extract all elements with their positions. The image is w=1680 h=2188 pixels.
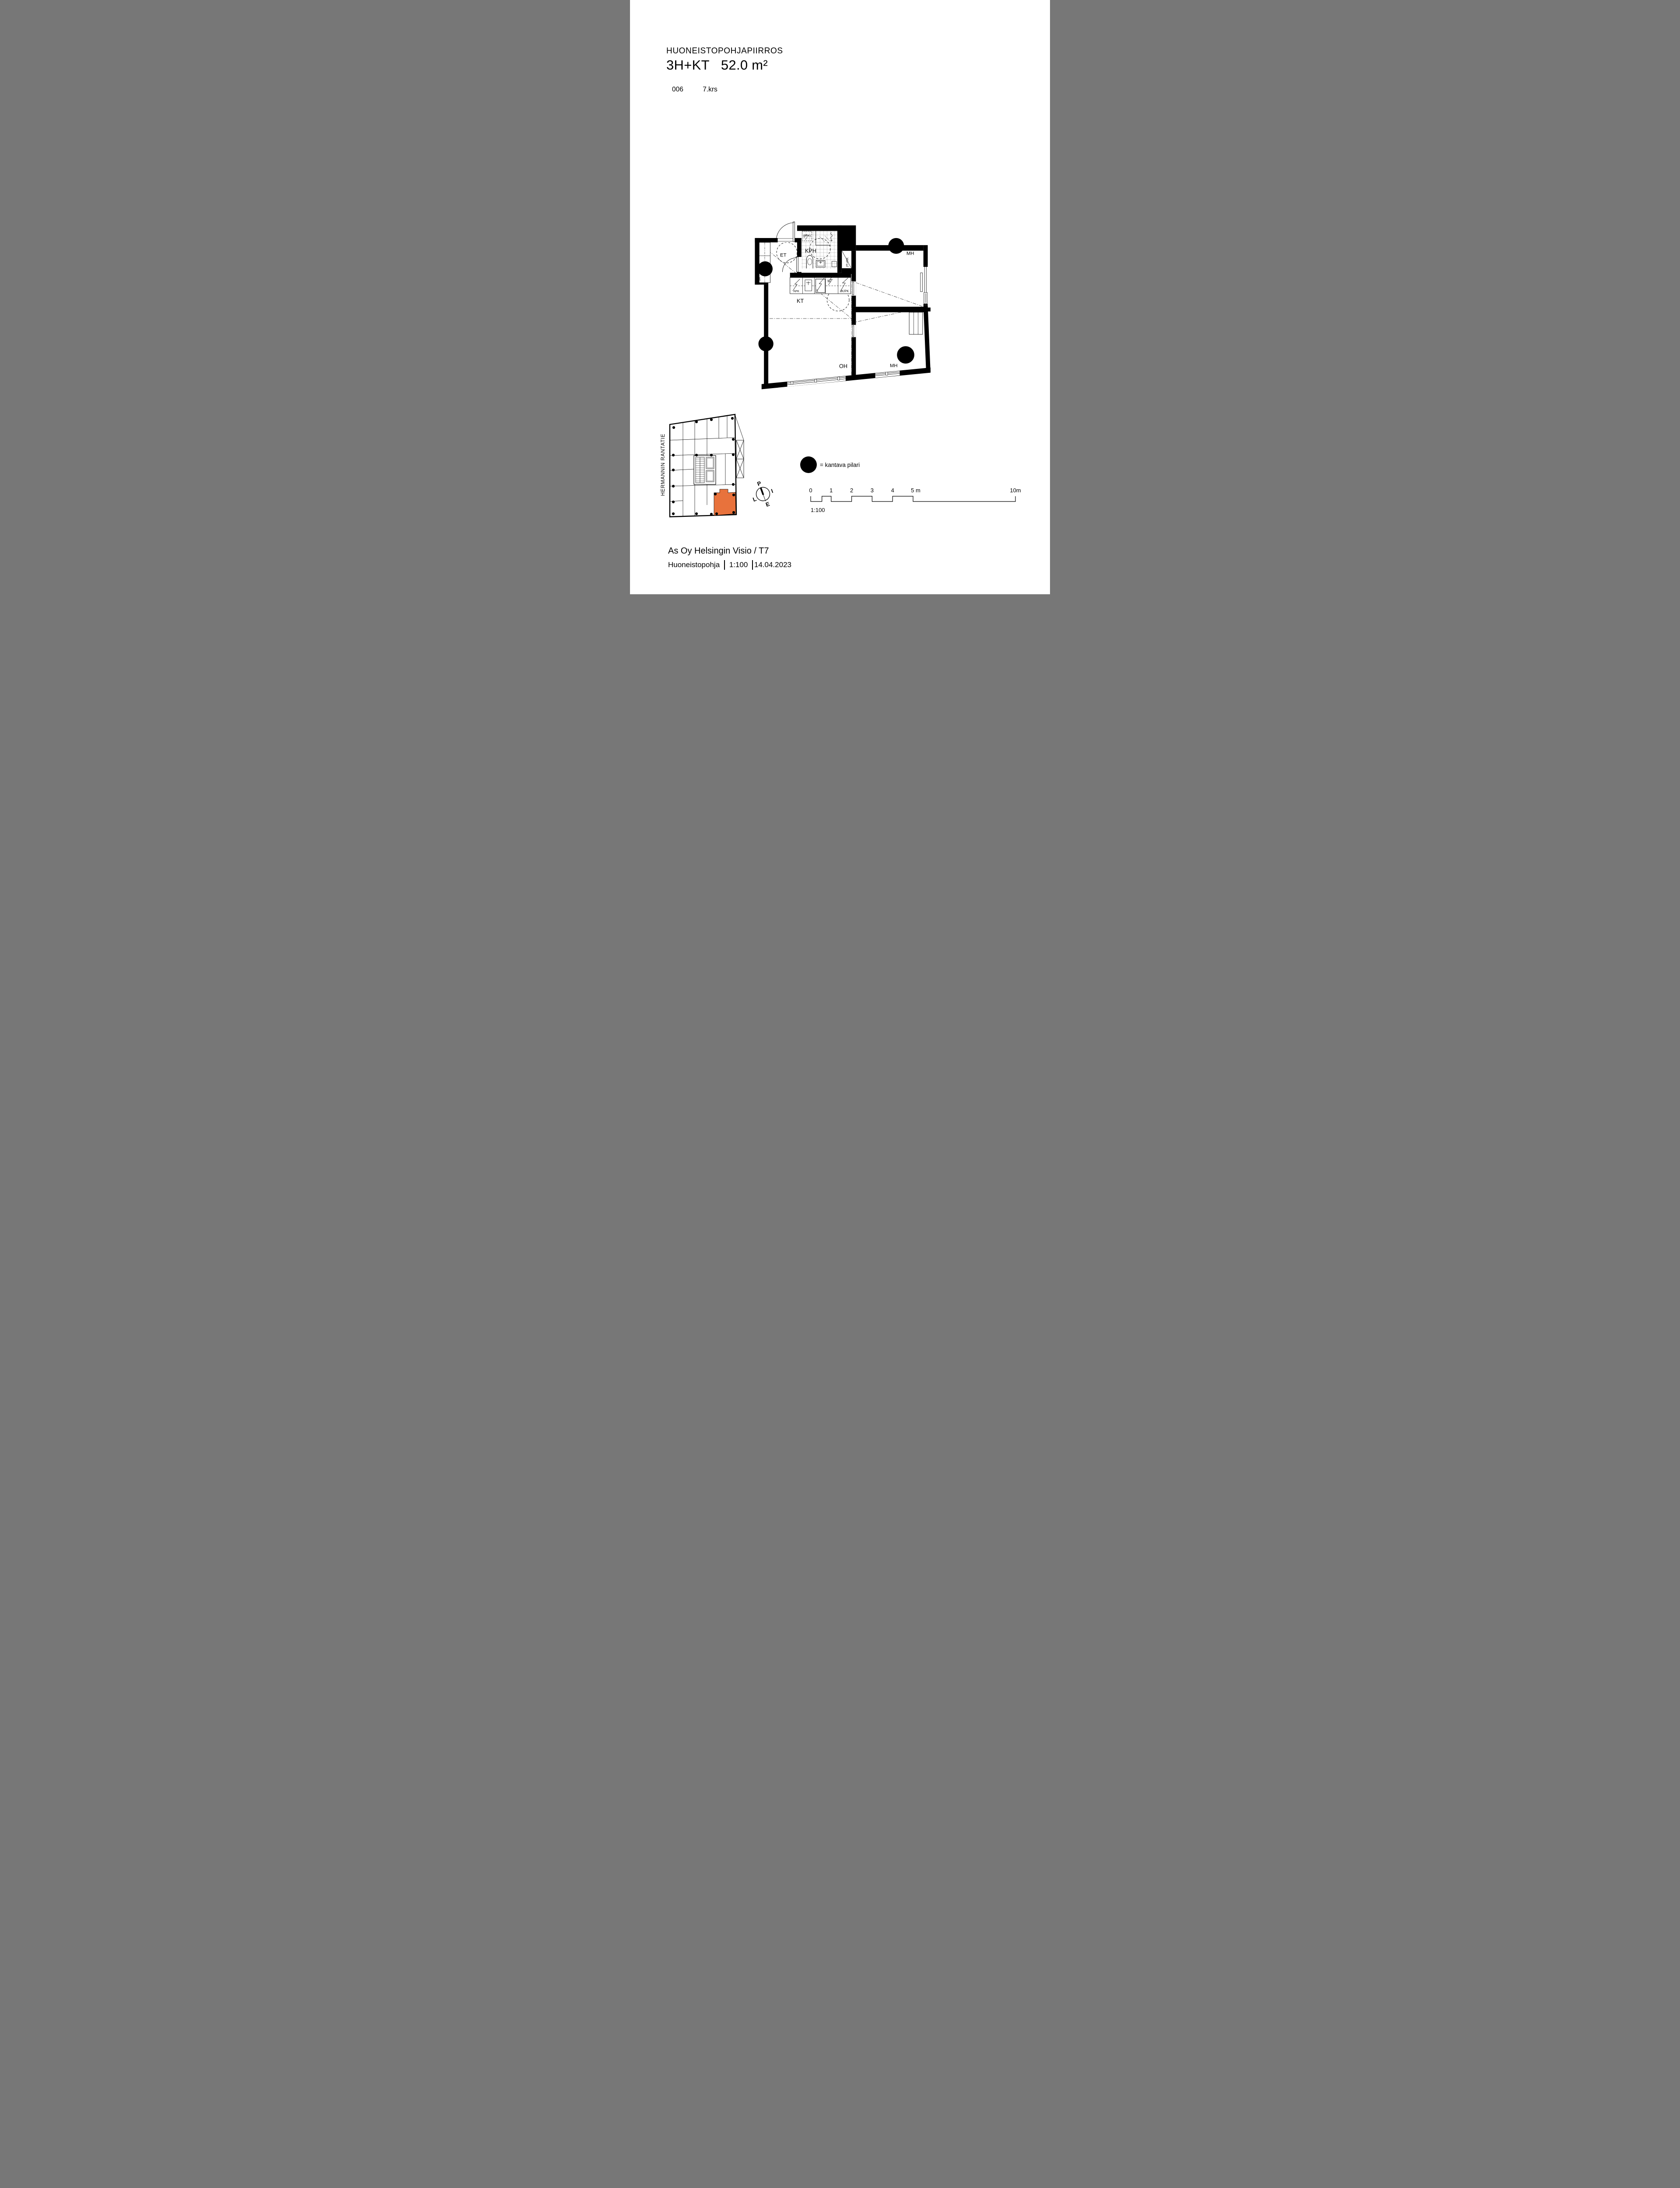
scale-tick-2: 2 (850, 487, 853, 494)
window-living (787, 375, 846, 386)
room-label-kitchen: KT (797, 298, 804, 304)
scale-bar: 0 1 2 3 4 5 m 10m 1:100 (808, 487, 1022, 515)
label-closet: SK (757, 277, 761, 281)
bathroom-door-leaf (797, 257, 798, 272)
apartment-type: 3H+KT (666, 57, 710, 73)
scale-tick-3: 3 (871, 487, 874, 494)
floor-plan: ET KPH (PPK) SK JT+RK APK L M JK/PK KT O… (752, 214, 934, 395)
divider (752, 560, 753, 570)
highlighted-unit (714, 489, 736, 515)
footer-scale: 1:100 (729, 561, 748, 569)
scale-tick-1: 1 (829, 487, 833, 494)
stair-core (694, 456, 716, 484)
entry-door-leaf (793, 222, 795, 242)
document-type-title: HUONEISTOPOHJAPIIRROS (666, 46, 783, 56)
room-label-bedroom-top: MH (906, 251, 914, 256)
window-bedroom-top (920, 265, 928, 305)
radiator (920, 273, 923, 291)
label-microwave: M (827, 279, 830, 283)
site-plan (668, 413, 747, 518)
scale-bar-line (811, 496, 1015, 501)
label-fridge: JK/PK (840, 289, 849, 293)
drawing-sheet: HUONEISTOPOHJAPIIRROS 3H+KT52.0 m² 006 7… (630, 0, 1050, 594)
bedroom-bottom-door (851, 325, 856, 337)
legend-pillar-text: = kantava pilari (820, 462, 860, 468)
bedroom-top-door (851, 281, 856, 295)
project-name: As Oy Helsingin Visio / T7 (668, 546, 769, 556)
apartment-meta: 006 7.krs (672, 86, 717, 94)
apartment-area: 52.0 m² (721, 57, 768, 73)
pillar-icon (888, 238, 904, 254)
pillar-icon (897, 346, 914, 364)
wardrobe (909, 312, 923, 335)
label-washer-reservation: (PPK) (803, 234, 811, 237)
footer-doc-name: Huoneistopohja (668, 561, 720, 569)
street-name: HERMANNIN RANTATIE (661, 417, 666, 513)
compass-east: I (770, 487, 774, 494)
room-label-bathroom: KPH (805, 248, 816, 254)
apartment-title: 3H+KT52.0 m² (666, 57, 768, 73)
divider (724, 560, 725, 570)
apartment-number: 006 (672, 86, 683, 93)
floor-number: 7.krs (703, 86, 717, 93)
room-label-entry: ET (780, 252, 787, 258)
compass-north: P (756, 480, 763, 487)
pillar-icon (758, 261, 773, 276)
compass-icon: P I E L (745, 477, 780, 512)
footer-date: 14.04.2023 (754, 561, 791, 569)
pillar-icon (800, 456, 817, 473)
room-label-living: OH (839, 363, 847, 369)
scale-tick-4: 4 (891, 487, 894, 494)
label-dishwasher: APK (793, 290, 799, 293)
balconies (736, 440, 744, 478)
legend: = kantava pilari (799, 453, 931, 476)
entry-door (776, 222, 794, 242)
label-stove: L (816, 289, 819, 293)
scale-ratio: 1:100 (811, 507, 825, 513)
scale-tick-0: 0 (809, 487, 812, 494)
room-label-bedroom-bottom: MH (890, 363, 898, 368)
compass-south: E (765, 501, 771, 508)
scale-tick-10: 10m (1010, 487, 1021, 494)
scale-tick-5: 5 m (911, 487, 920, 494)
pillar-icon (759, 337, 773, 351)
footer-meta: Huoneistopohja 1:100 14.04.2023 (668, 560, 791, 570)
label-duct: JT+RK (845, 257, 849, 267)
